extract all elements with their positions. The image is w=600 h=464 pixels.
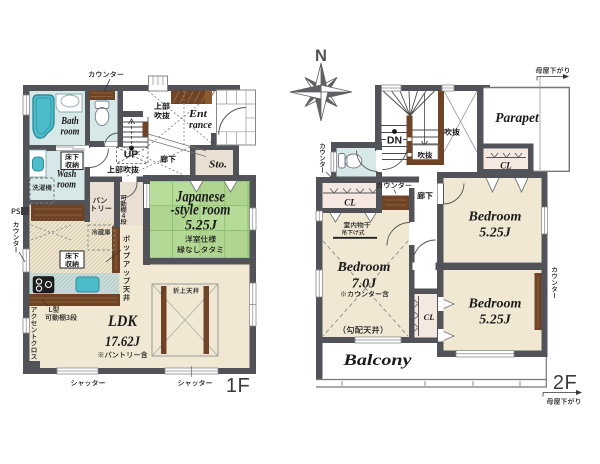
svg-text:7.0J: 7.0J [352, 277, 378, 292]
svg-text:N: N [315, 47, 327, 65]
svg-text:DN: DN [387, 135, 402, 147]
svg-text:Sto.: Sto. [209, 160, 227, 171]
svg-text:room: room [57, 180, 76, 191]
svg-text:room: room [61, 127, 80, 138]
svg-text:17.62J: 17.62J [105, 334, 140, 350]
svg-text:CL: CL [424, 312, 435, 322]
svg-text:-style room: -style room [171, 202, 231, 219]
svg-text:UP: UP [124, 149, 139, 161]
svg-text:Balcony: Balcony [342, 352, 411, 369]
svg-text:5.25J: 5.25J [479, 313, 512, 328]
svg-text:Bath: Bath [60, 116, 79, 127]
svg-text:LDK: LDK [107, 313, 138, 330]
svg-text:Bedroom: Bedroom [468, 297, 522, 312]
svg-text:Bedroom: Bedroom [337, 260, 391, 275]
svg-text:Bedroom: Bedroom [468, 210, 522, 225]
svg-text:CL: CL [500, 161, 512, 171]
svg-text:5.25J: 5.25J [185, 218, 217, 234]
svg-text:rance: rance [189, 119, 212, 131]
svg-text:Parapet: Parapet [495, 110, 540, 125]
svg-text:1F: 1F [226, 375, 250, 397]
svg-text:2F: 2F [553, 372, 577, 394]
svg-text:Wash: Wash [57, 169, 77, 180]
svg-text:5.25J: 5.25J [479, 226, 512, 241]
svg-text:CL: CL [344, 198, 356, 208]
